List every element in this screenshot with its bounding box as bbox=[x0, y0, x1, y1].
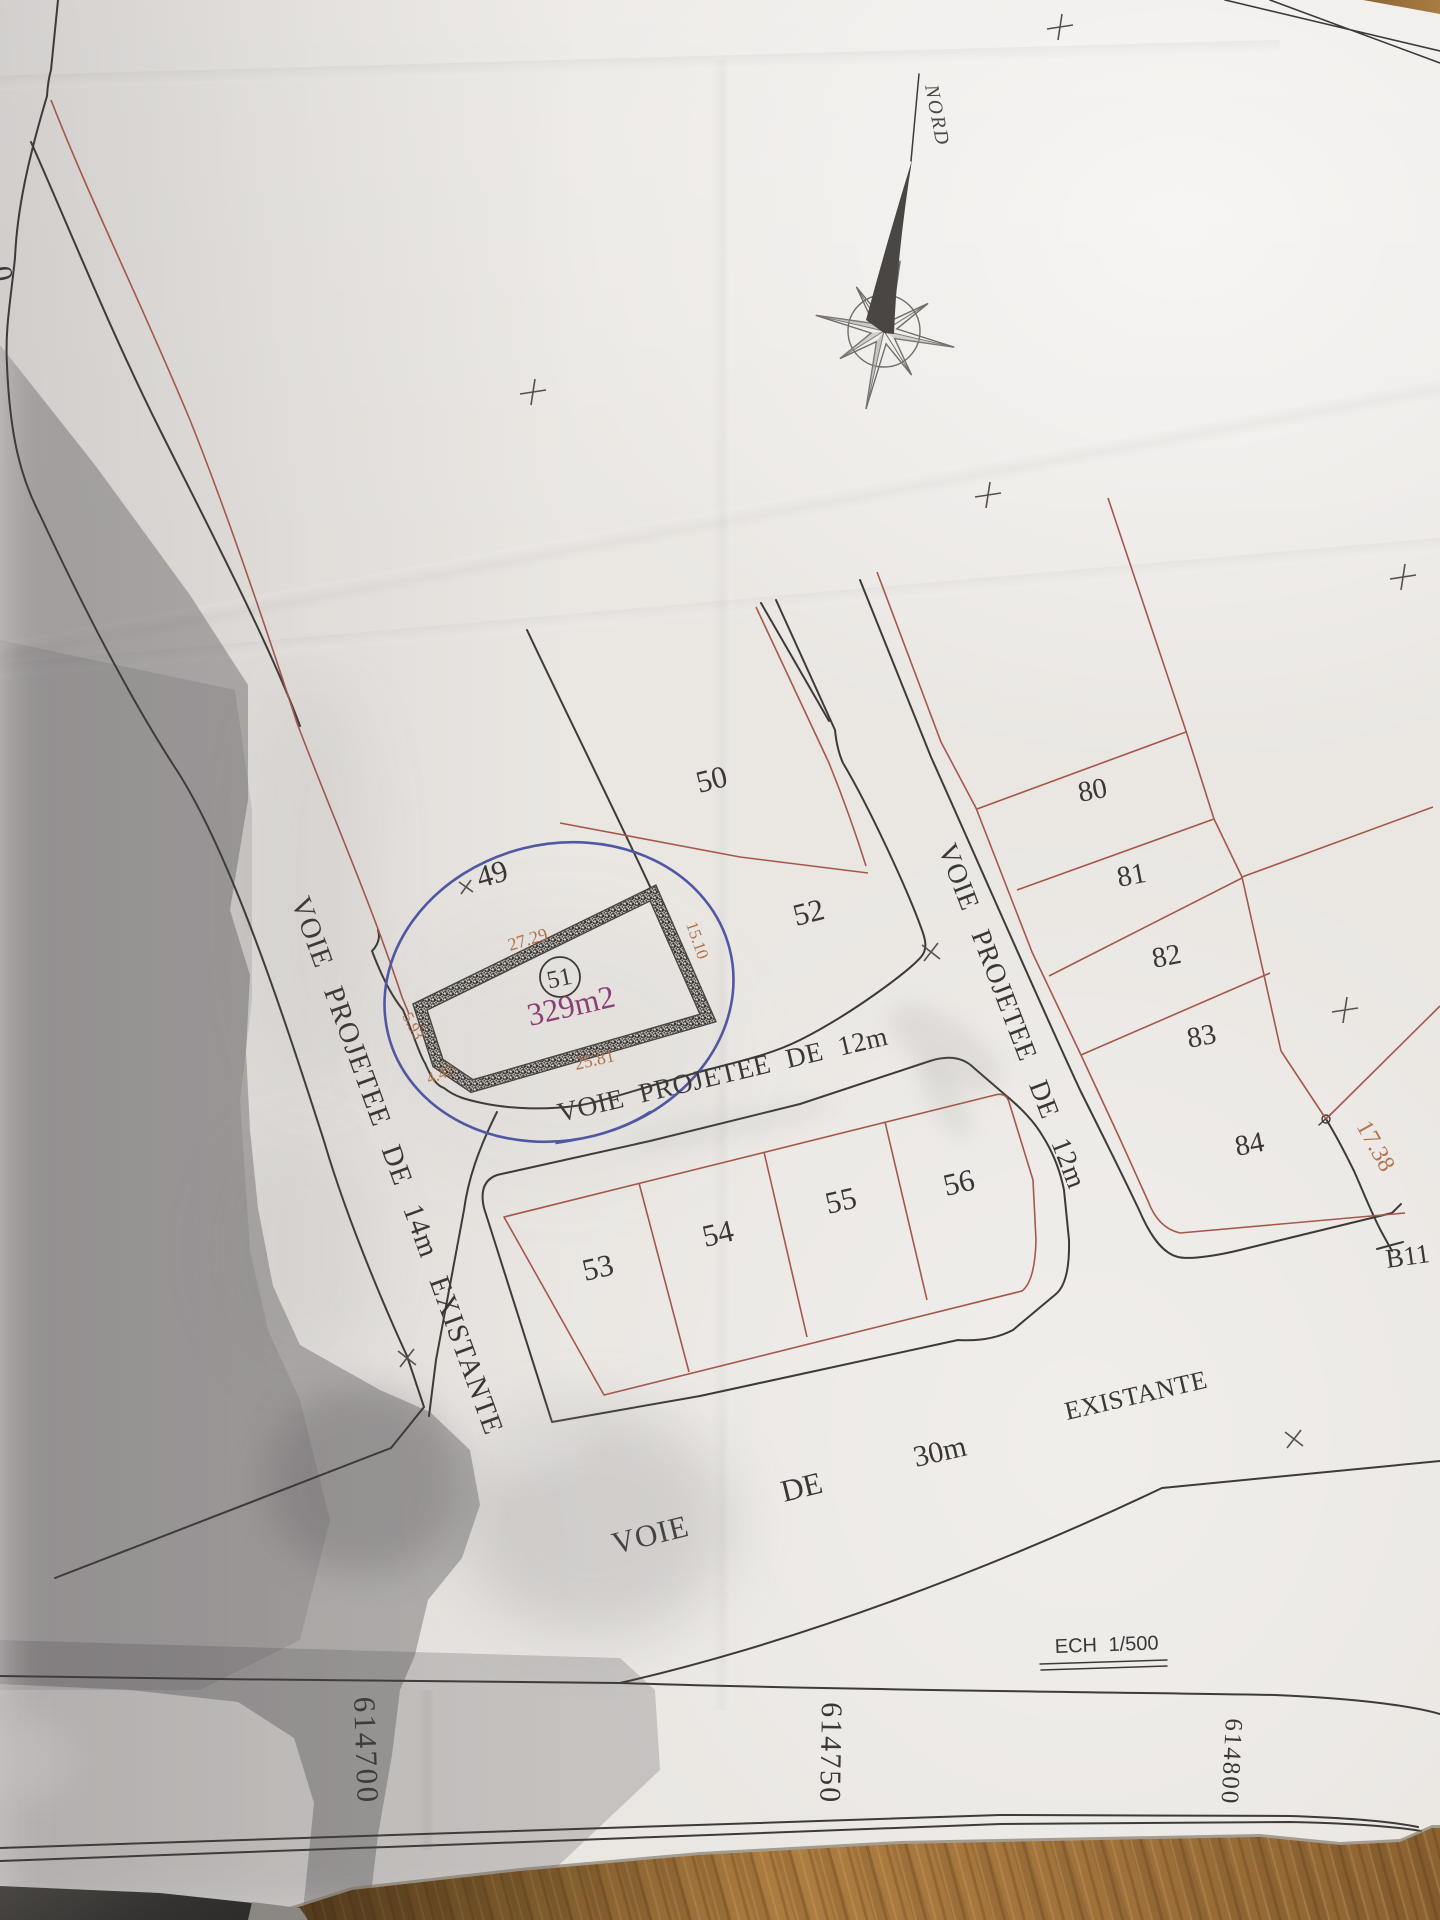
svg-text:0: 0 bbox=[0, 263, 19, 284]
svg-text:55: 55 bbox=[822, 1180, 860, 1221]
svg-text:54: 54 bbox=[699, 1213, 738, 1254]
svg-text:NORD: NORD bbox=[920, 82, 954, 148]
svg-text:614750: 614750 bbox=[813, 1702, 848, 1805]
svg-text:82: 82 bbox=[1149, 938, 1184, 975]
svg-text:56: 56 bbox=[940, 1162, 978, 1203]
svg-text:B11: B11 bbox=[1384, 1238, 1432, 1274]
svg-text:49: 49 bbox=[472, 853, 511, 895]
svg-text:30m: 30m bbox=[910, 1430, 969, 1474]
svg-text:EXISTANTE: EXISTANTE bbox=[1062, 1365, 1210, 1426]
svg-text:80: 80 bbox=[1075, 772, 1110, 809]
svg-text:52: 52 bbox=[789, 891, 828, 932]
svg-text:84: 84 bbox=[1232, 1126, 1267, 1163]
svg-text:81: 81 bbox=[1114, 857, 1149, 894]
svg-text:50: 50 bbox=[692, 758, 731, 799]
svg-text:83: 83 bbox=[1184, 1018, 1219, 1055]
svg-text:53: 53 bbox=[579, 1247, 617, 1288]
svg-text:614800: 614800 bbox=[1215, 1718, 1247, 1806]
svg-text:ECH 1/500: ECH 1/500 bbox=[1054, 1632, 1159, 1658]
svg-text:DE: DE bbox=[777, 1465, 826, 1509]
svg-text:17.38: 17.38 bbox=[1351, 1116, 1400, 1176]
svg-text:VOIE PROJETEE DE 12m: VOIE PROJETEE DE 12m bbox=[931, 839, 1091, 1193]
